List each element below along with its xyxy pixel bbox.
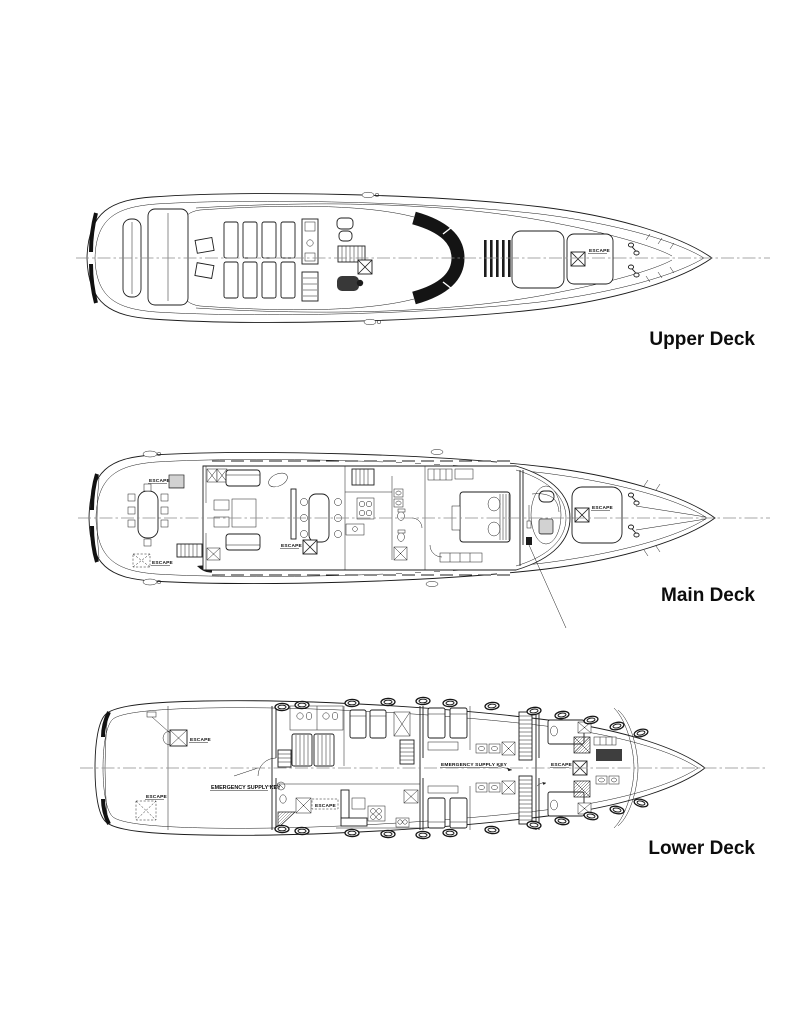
svg-text:ESCAPE: ESCAPE (592, 505, 614, 511)
engine-room-escape-aft: ESCAPE (136, 794, 168, 820)
grill-knob (357, 280, 363, 286)
deck-hatch-oval (143, 451, 157, 457)
fwd-cabin-top (548, 720, 591, 753)
bulkhead-door-arc (258, 758, 276, 776)
callout-leader-line (529, 545, 566, 628)
upper-deck-label: Upper Deck (649, 329, 755, 350)
svg-text:ESCAPE: ESCAPE (589, 248, 611, 254)
helm-console (539, 491, 554, 502)
deck-loungers (224, 222, 295, 298)
aft-dining-set (128, 484, 168, 546)
svg-text:ESCAPE: ESCAPE (152, 560, 174, 566)
helm-chair (539, 519, 553, 534)
bow-cleat-port (628, 243, 639, 255)
helm-seat-pod (337, 218, 353, 229)
bow-cleat-starboard (628, 265, 639, 277)
deck-hatch-dot (157, 452, 161, 456)
grill-counter (302, 272, 318, 301)
yacht-deck-plan-canvas: ESCAPE Upper Deck ESCAPE (0, 0, 800, 1036)
emergency-supply-key-aft: EMERGENCY SUPPLY KEY (210, 768, 285, 791)
bow-cleat-port (628, 493, 639, 505)
svg-text:ESCAPE: ESCAPE (149, 478, 171, 484)
aft-escape-label: ESCAPE (148, 475, 184, 488)
svg-text:ESCAPE: ESCAPE (281, 543, 303, 549)
transom-platform-line (97, 478, 99, 558)
main-deck-plan: ESCAPE ESCAPE (78, 449, 770, 628)
lower-deck-plan: ESCAPE ESCAPE EMERGENCY SUPPLY KEY (80, 697, 765, 859)
svg-text:ESCAPE: ESCAPE (551, 762, 573, 768)
bow-cleat-starboard (628, 525, 639, 537)
deck-hatch-oval (143, 579, 157, 585)
deck-fitting-oval-top (362, 192, 374, 198)
escape-label-upper: ESCAPE (588, 248, 611, 254)
vent-grille (484, 240, 511, 277)
escape-hatch-xbox (571, 252, 585, 266)
deck-hatch-oval (431, 449, 443, 454)
guest-cabin-aft-top (428, 708, 467, 750)
lower-deck-label: Lower Deck (648, 838, 755, 859)
grill-unit (337, 276, 359, 291)
engine-room-escape-fwd: ESCAPE (147, 712, 212, 746)
deck-hatch-oval (426, 581, 438, 586)
tilted-panel-port (195, 238, 214, 254)
crew-quarters (277, 706, 420, 784)
tilted-panel-starboard (195, 263, 214, 279)
emergency-supply-key-fwd: EMERGENCY SUPPLY KEY (440, 762, 512, 771)
svg-text:ESCAPE: ESCAPE (315, 803, 337, 809)
coachroof-panel (512, 231, 564, 288)
guest-cabin-aft-bottom (428, 786, 467, 828)
deck-fitting-dot-top (375, 193, 379, 197)
upper-deck-plan: ESCAPE Upper Deck (76, 192, 770, 350)
main-deck-label: Main Deck (661, 585, 755, 606)
fwd-cabin-bottom (548, 781, 591, 816)
deck-plan-page: ESCAPE Upper Deck ESCAPE (0, 0, 800, 1036)
svg-text:ESCAPE: ESCAPE (190, 737, 212, 743)
deck-fitting-oval-bottom (364, 319, 376, 325)
svg-text:ESCAPE: ESCAPE (146, 794, 168, 800)
deck-hatch-dot (157, 580, 161, 584)
companion-seat-pod (339, 231, 352, 241)
master-bed (460, 492, 510, 542)
deck-hatch-xbox (358, 260, 372, 274)
fwd-zone-bulkhead (536, 708, 539, 830)
aft-escape-hatch-dashed: ESCAPE (133, 554, 174, 567)
wet-bar (302, 219, 318, 264)
svg-text:EMERGENCY SUPPLY KEY: EMERGENCY SUPPLY KEY (441, 762, 508, 768)
crew-mess: ESCAPE (278, 790, 420, 828)
